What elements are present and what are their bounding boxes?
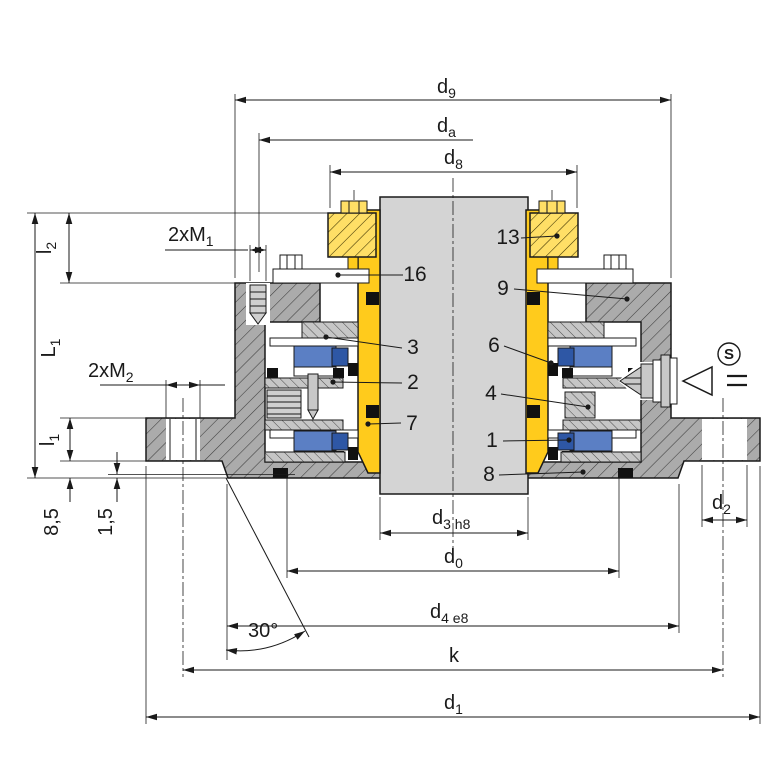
spring-left: [267, 390, 301, 418]
sleeve-oring-right-top: [527, 292, 540, 305]
callout-16: 16: [403, 263, 426, 286]
sleeve-oring-right-bottom: [527, 405, 540, 418]
svg-text:S: S: [724, 346, 734, 363]
technical-drawing-canvas: S: [0, 0, 768, 768]
seal-ring-lower-left: [294, 431, 336, 451]
seal-ring-lower-right: [570, 431, 612, 451]
callout-6: 6: [488, 334, 500, 357]
clamp-ring-left: [328, 213, 376, 257]
gland-screw-m1: [246, 283, 270, 325]
label-8-5: 8,5: [41, 508, 63, 536]
retainer-cap-right: [548, 322, 604, 338]
right-flange-bolt-hole: [702, 419, 747, 460]
label-k: k: [449, 645, 460, 667]
set-plate-left: [273, 269, 369, 283]
plate-screw-left: [280, 255, 302, 269]
seal-cross-section: S: [0, 0, 768, 768]
plate-screw-right: [604, 255, 626, 269]
sleeve-oring-left-bottom: [366, 405, 379, 418]
label-30deg: 30°: [248, 620, 278, 642]
callout-9: 9: [497, 277, 509, 300]
retainer-cap-left: [302, 322, 358, 338]
label-1-5: 1,5: [95, 508, 117, 536]
callout-4: 4: [485, 382, 497, 405]
bottom-oring-right: [618, 468, 633, 478]
callout-8: 8: [483, 463, 495, 486]
support-ring-right: [565, 392, 595, 418]
callout-3: 3: [407, 336, 419, 359]
clamp-ring-right: [530, 213, 578, 257]
callout-1: 1: [486, 429, 498, 452]
plug-body: [641, 364, 653, 398]
set-plate-right: [537, 269, 633, 283]
flush-symbol-S: S: [718, 343, 740, 365]
seal-ring-upper-left: [294, 346, 336, 367]
bottom-oring-left: [273, 468, 288, 478]
drive-pin-left: [308, 374, 318, 419]
callout-13: 13: [496, 226, 519, 249]
callout-2: 2: [407, 371, 419, 394]
callout-7: 7: [406, 412, 418, 435]
seal-ring-upper-right: [570, 346, 612, 367]
sleeve-oring-left-top: [366, 292, 379, 305]
